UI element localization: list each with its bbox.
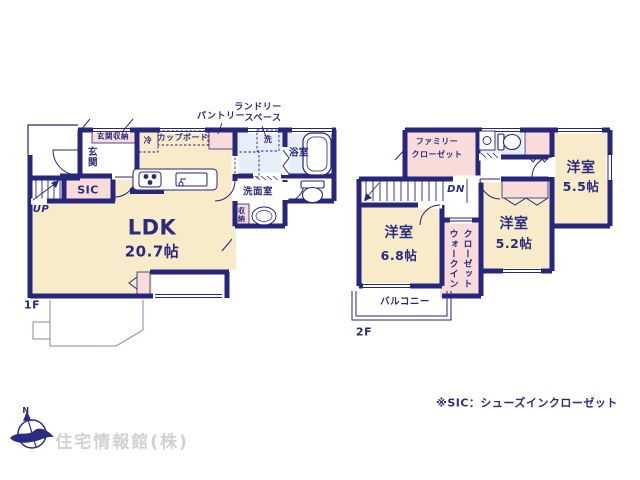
terrace-outline (33, 300, 143, 346)
label-room68-size: 6.8帖 (381, 250, 418, 263)
label-family-closet-2: クローゼット (412, 151, 463, 159)
label-laundry-2: スペース (245, 115, 282, 124)
label-genkan: 玄関 (86, 147, 96, 168)
label-bath: 浴室 (289, 148, 309, 158)
label-floor1: 1F (24, 300, 40, 311)
label-pantry: パントリー (197, 113, 245, 122)
sic-note: ※SIC：シューズインクローゼット (436, 398, 618, 409)
label-storage: 収納 (238, 207, 245, 223)
floor2-plan (352, 127, 614, 320)
compass-n-label: N (22, 407, 29, 415)
label-wic-1: ウォークイン (448, 229, 457, 289)
stairs-up (33, 180, 60, 201)
label-room52-name: 洋室 (500, 217, 529, 231)
label-washer: 洗 (264, 136, 273, 144)
label-ldk-name: LDK (128, 218, 177, 239)
label-room55-name: 洋室 (567, 161, 596, 175)
label-family-closet-1: ファミリー (416, 138, 459, 146)
toilet-1f (301, 181, 324, 203)
label-laundry-1: ランドリー (234, 104, 282, 113)
kitchen-counter (133, 169, 217, 190)
label-balcony: バルコニー (380, 297, 430, 307)
label-ldk-size: 20.7帖 (125, 245, 180, 260)
label-room55-size: 5.5帖 (563, 181, 600, 194)
label-sic: SIC (77, 185, 99, 196)
company-name: 住宅情報館(株) (55, 435, 189, 452)
label-room68-name: 洋室 (385, 226, 414, 240)
label-genkan-storage: 玄関収納 (97, 132, 129, 140)
label-dn: DN (447, 185, 465, 195)
label-up: UP (33, 205, 49, 215)
label-fridge: 冷 (144, 137, 153, 145)
compass-icon (10, 411, 54, 448)
label-wic-2: クローゼット (462, 229, 471, 289)
label-room52-size: 5.2帖 (496, 238, 533, 251)
label-cupboard: カップボード (158, 134, 209, 142)
label-washroom: 洗面室 (243, 187, 273, 197)
floorplan-canvas: 玄関収納 玄関 SIC UP LDK 20.7帖 冷 カップボード パントリー … (0, 0, 640, 480)
label-floor2: 2F (356, 327, 372, 338)
